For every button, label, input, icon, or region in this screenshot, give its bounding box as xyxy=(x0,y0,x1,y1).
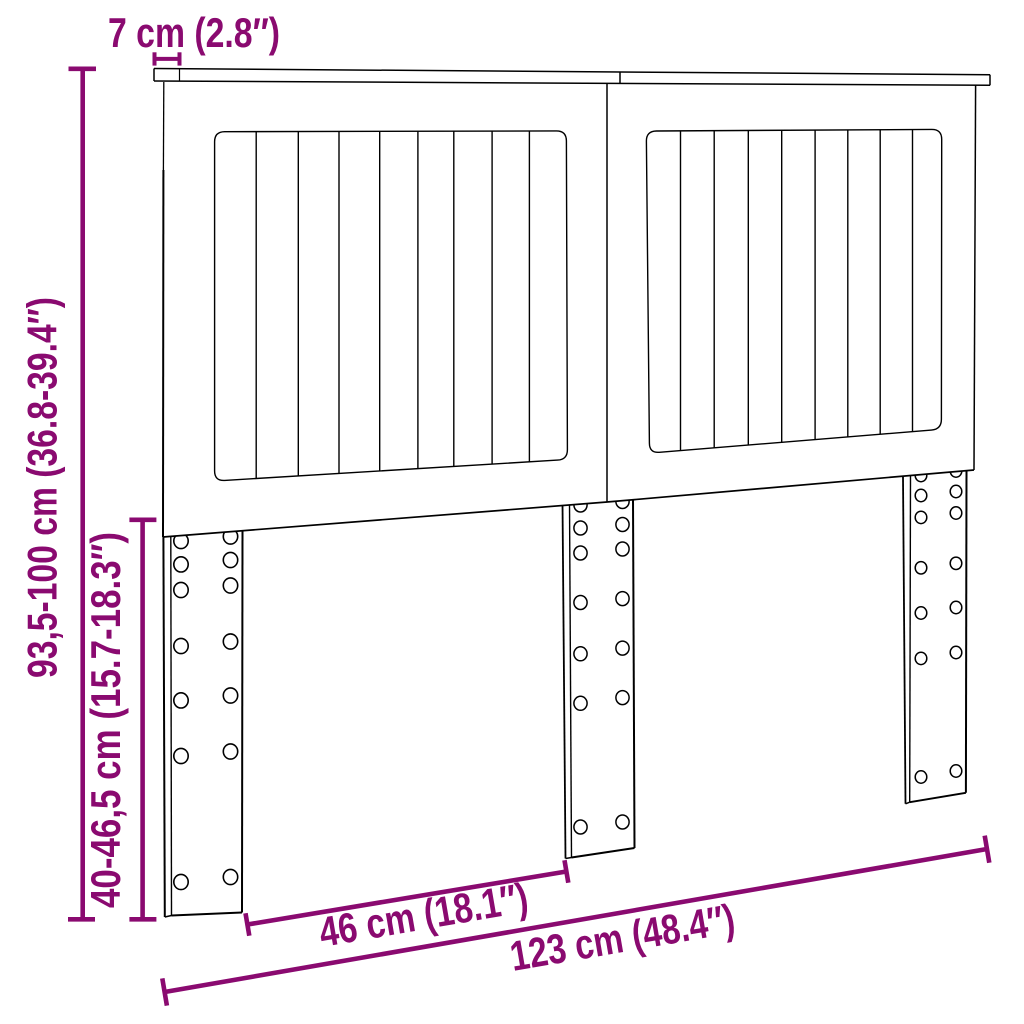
svg-text:40-46,5 cm (15.7-18.3″): 40-46,5 cm (15.7-18.3″) xyxy=(82,532,129,908)
svg-text:93,5-100 cm (36.8-39.4″): 93,5-100 cm (36.8-39.4″) xyxy=(19,297,66,678)
svg-text:7 cm (2.8″): 7 cm (2.8″) xyxy=(108,9,280,56)
